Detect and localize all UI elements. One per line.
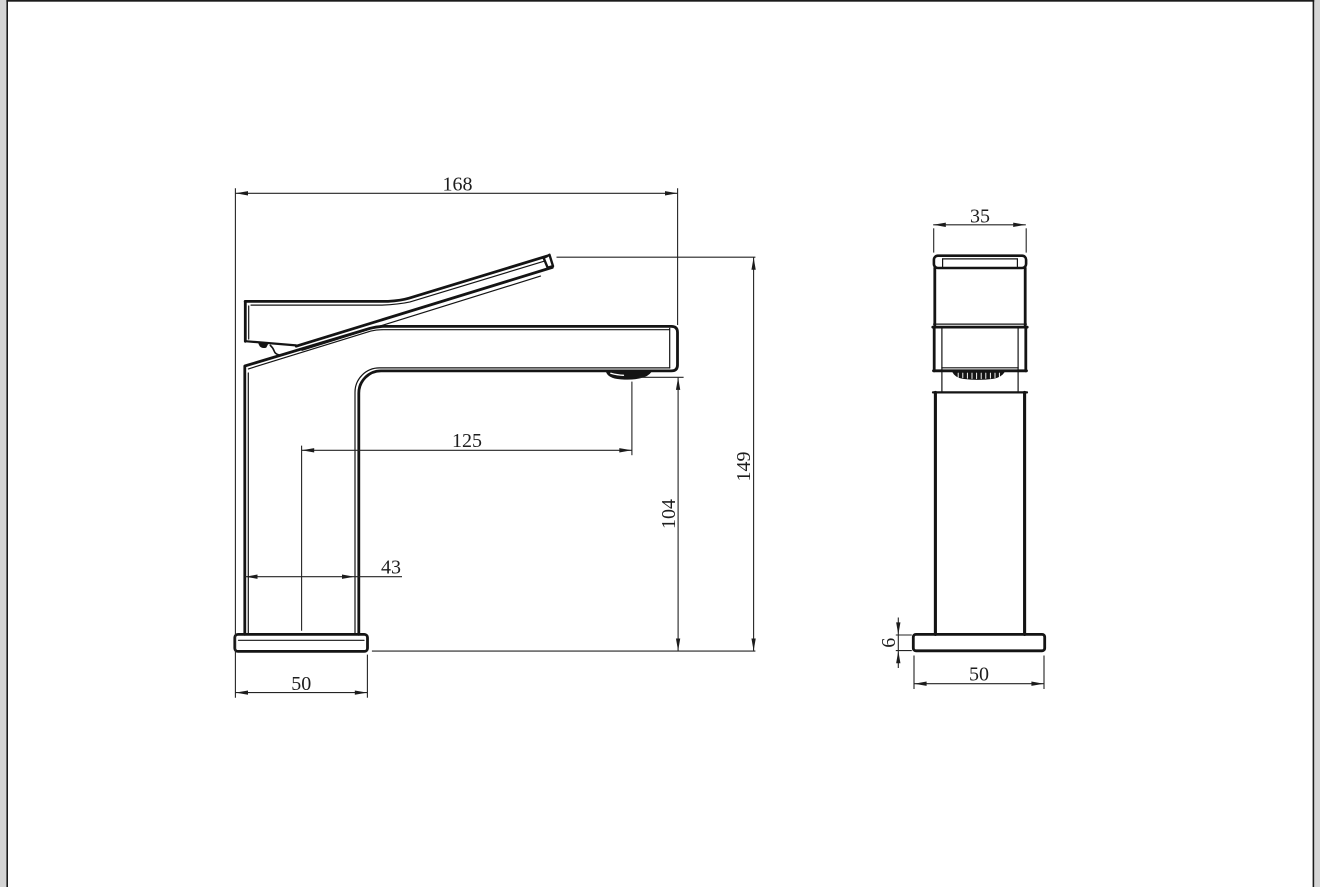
svg-text:149: 149 — [733, 452, 755, 482]
svg-text:125: 125 — [452, 430, 482, 452]
svg-text:168: 168 — [443, 173, 473, 195]
svg-text:104: 104 — [658, 499, 680, 529]
svg-text:35: 35 — [970, 205, 990, 227]
svg-text:6: 6 — [878, 638, 900, 648]
svg-text:50: 50 — [291, 673, 311, 695]
svg-text:50: 50 — [969, 664, 989, 686]
svg-text:43: 43 — [381, 557, 401, 579]
